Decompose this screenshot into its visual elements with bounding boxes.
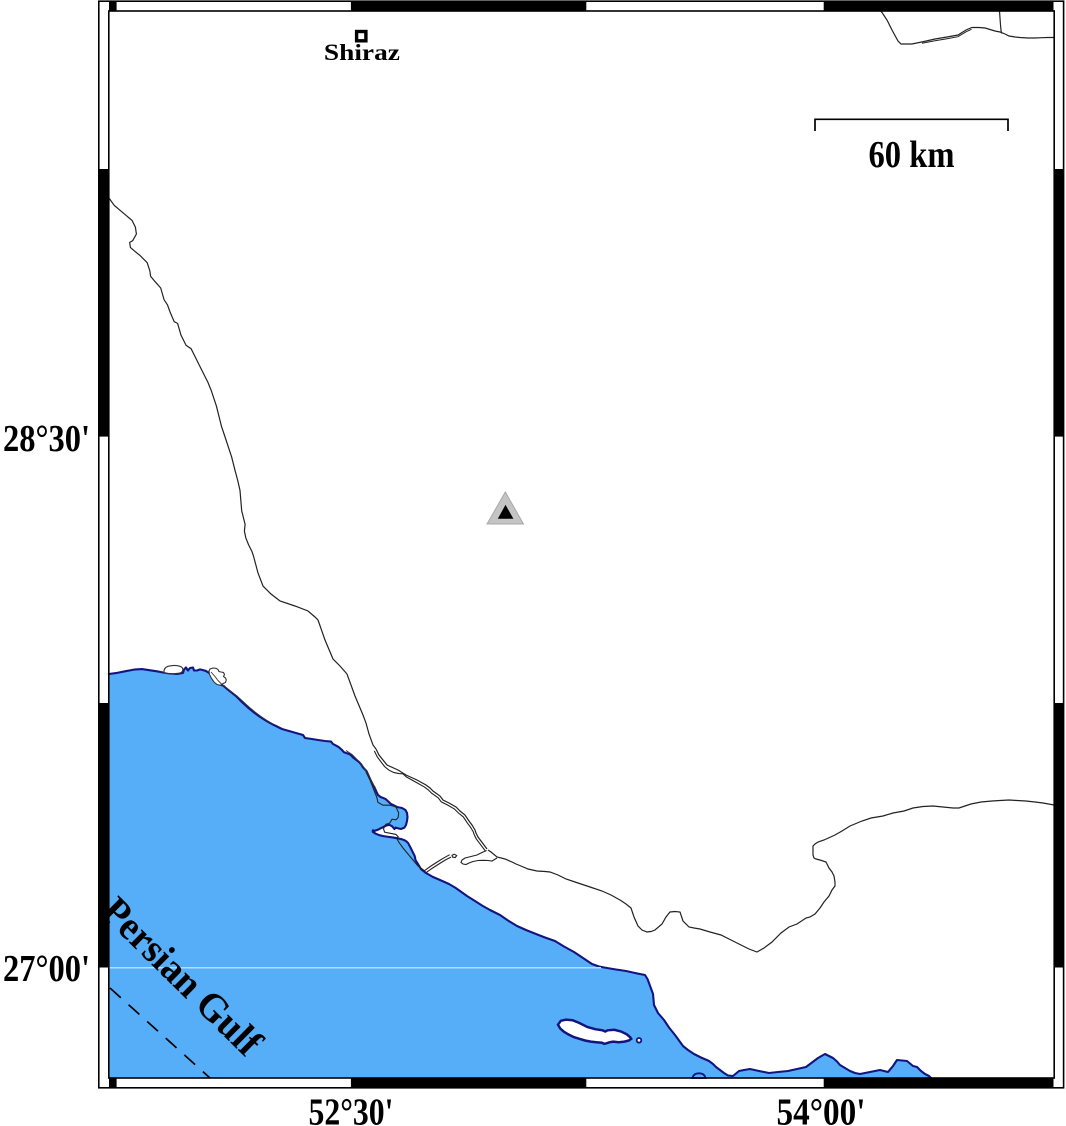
svg-text:27°00': 27°00'	[3, 948, 90, 990]
svg-text:60 km: 60 km	[869, 134, 955, 176]
svg-text:54°00': 54°00'	[777, 1092, 866, 1126]
svg-text:52°30': 52°30'	[309, 1092, 394, 1126]
svg-text:28°30': 28°30'	[3, 418, 90, 460]
svg-text:Shiraz: Shiraz	[324, 40, 400, 65]
